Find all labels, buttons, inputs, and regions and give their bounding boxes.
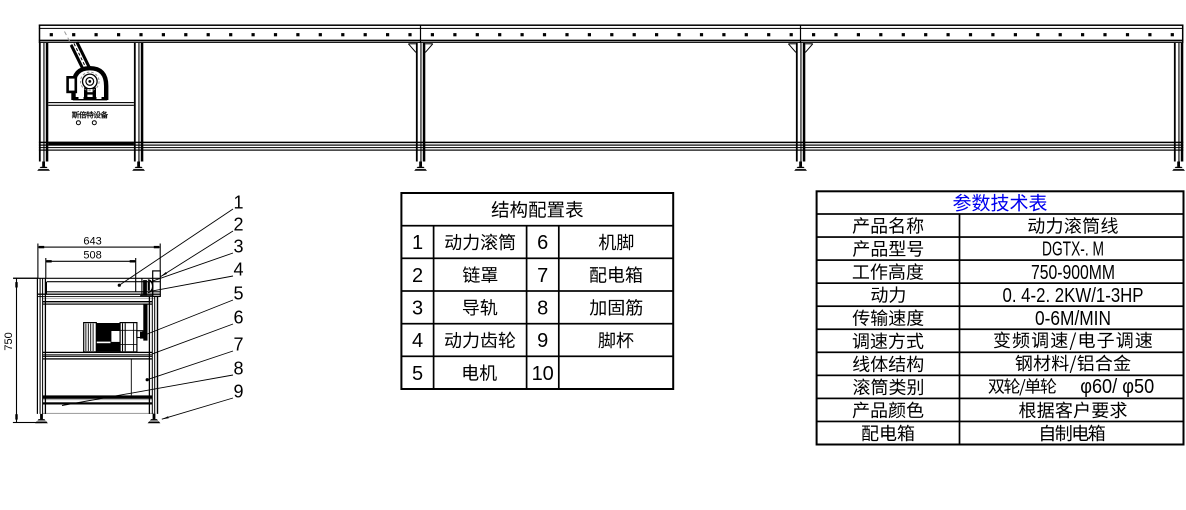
svg-text:6: 6 (537, 232, 548, 254)
svg-text:2: 2 (412, 265, 423, 287)
svg-text:750-900MM: 750-900MM (1031, 262, 1115, 284)
svg-text:10: 10 (532, 363, 554, 385)
svg-text:9: 9 (233, 381, 243, 401)
svg-text:1: 1 (233, 192, 243, 212)
svg-text:508: 508 (83, 250, 101, 262)
svg-text:1: 1 (412, 232, 423, 254)
svg-text:6: 6 (233, 307, 243, 327)
svg-text:5: 5 (233, 283, 243, 303)
svg-text:φ60/ φ50: φ60/ φ50 (1080, 376, 1154, 398)
svg-text:0-6M/MIN: 0-6M/MIN (1035, 308, 1111, 330)
svg-text:750: 750 (3, 332, 15, 350)
svg-text:4: 4 (233, 259, 243, 279)
svg-text:5: 5 (412, 363, 423, 385)
svg-text:2: 2 (233, 214, 243, 234)
svg-text:0. 4-2. 2KW/1-3HP: 0. 4-2. 2KW/1-3HP (1003, 285, 1144, 307)
svg-text:7: 7 (233, 334, 243, 354)
svg-text:8: 8 (537, 298, 548, 320)
svg-text:4: 4 (412, 330, 423, 352)
svg-text:3: 3 (233, 236, 243, 256)
svg-text:643: 643 (83, 236, 101, 248)
svg-text:DGTX-. M: DGTX-. M (1042, 239, 1104, 261)
svg-text:8: 8 (233, 358, 243, 378)
svg-text:9: 9 (537, 330, 548, 352)
svg-text:7: 7 (537, 265, 548, 287)
svg-text:3: 3 (412, 298, 423, 320)
